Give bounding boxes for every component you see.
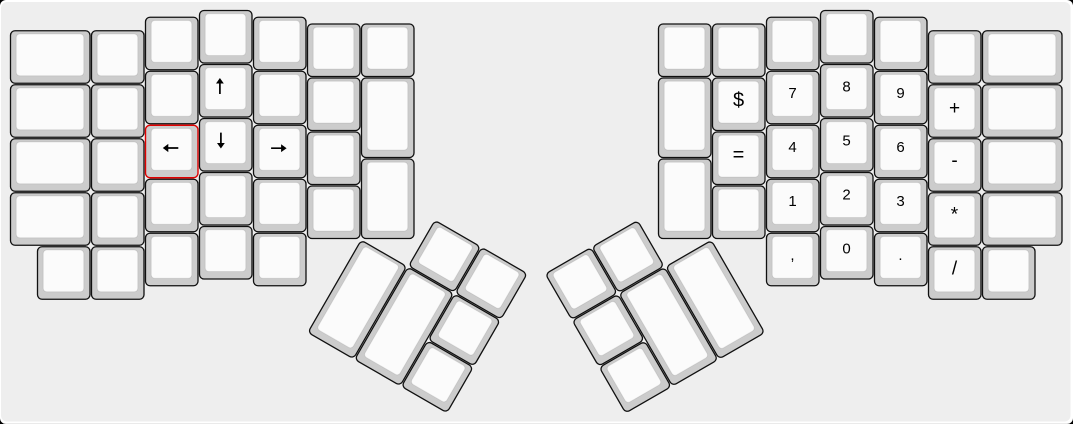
- svg-text:7: 7: [788, 85, 796, 102]
- svg-text:=: =: [733, 144, 745, 166]
- svg-text:-: -: [951, 151, 957, 172]
- svg-text:2: 2: [842, 186, 850, 203]
- svg-text:0: 0: [842, 240, 850, 257]
- svg-text:$: $: [733, 89, 744, 111]
- svg-text:9: 9: [896, 85, 904, 102]
- svg-text:4: 4: [788, 139, 796, 156]
- svg-text:/: /: [952, 259, 958, 280]
- svg-text:8: 8: [842, 78, 850, 95]
- svg-text:6: 6: [896, 139, 904, 156]
- svg-text:.: .: [898, 247, 902, 264]
- svg-text:1: 1: [788, 193, 796, 210]
- svg-text:5: 5: [842, 132, 850, 149]
- svg-text:+: +: [949, 98, 960, 119]
- svg-text:3: 3: [896, 193, 904, 210]
- svg-text:*: *: [951, 205, 959, 226]
- svg-text:,: ,: [790, 247, 794, 264]
